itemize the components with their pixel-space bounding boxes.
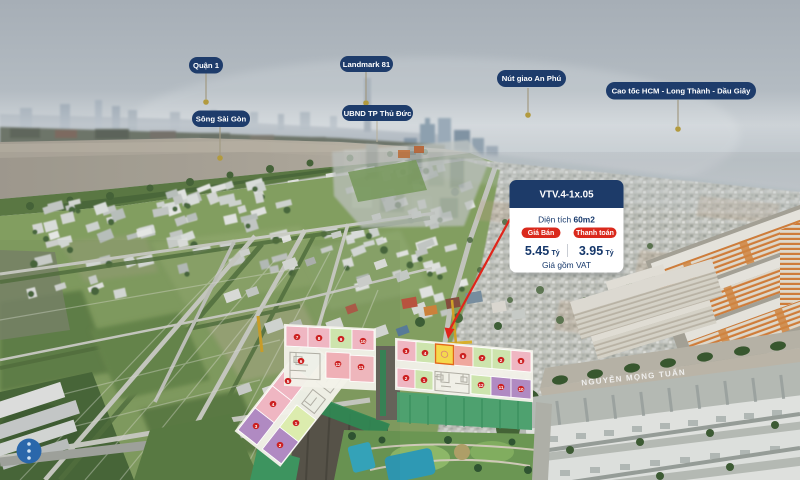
svg-text:5: 5 — [287, 379, 290, 384]
svg-text:Quận 1: Quận 1 — [193, 61, 220, 70]
svg-text:8: 8 — [318, 336, 321, 341]
svg-text:1: 1 — [423, 378, 426, 383]
svg-text:Landmark 81: Landmark 81 — [343, 60, 391, 69]
svg-text:3: 3 — [405, 349, 408, 354]
svg-text:2: 2 — [405, 376, 408, 381]
svg-text:Giá Bán: Giá Bán — [528, 230, 554, 237]
svg-text:Nút giao An Phú: Nút giao An Phú — [502, 74, 562, 83]
svg-text:UBND TP Thủ Đức: UBND TP Thủ Đức — [344, 109, 413, 118]
svg-text:10: 10 — [518, 387, 524, 392]
svg-text:1: 1 — [295, 421, 298, 426]
svg-text:Tỷ: Tỷ — [606, 250, 614, 257]
svg-text:VTV.4-1x.05: VTV.4-1x.05 — [539, 190, 594, 201]
svg-text:2: 2 — [279, 443, 282, 448]
svg-text:3.95: 3.95 — [579, 244, 603, 258]
svg-text:Diện tích 60m2: Diện tích 60m2 — [538, 215, 595, 225]
svg-text:10: 10 — [360, 339, 366, 344]
svg-text:Tỷ: Tỷ — [552, 250, 560, 257]
svg-text:9: 9 — [340, 337, 343, 342]
svg-text:Giá gồm VAT: Giá gồm VAT — [542, 260, 591, 270]
svg-text:8: 8 — [520, 359, 523, 364]
svg-text:2: 2 — [500, 358, 503, 363]
svg-text:Cao tốc HCM - Long Thành - Dầu: Cao tốc HCM - Long Thành - Dầu Giây — [612, 87, 752, 96]
svg-text:5.45: 5.45 — [525, 244, 549, 258]
svg-text:12: 12 — [478, 383, 484, 388]
svg-text:Thanh toán: Thanh toán — [576, 230, 614, 237]
svg-text:6: 6 — [300, 359, 303, 364]
svg-text:4: 4 — [272, 402, 275, 407]
svg-text:3: 3 — [255, 424, 258, 429]
svg-text:7: 7 — [481, 356, 484, 361]
svg-text:7: 7 — [296, 335, 299, 340]
svg-text:6: 6 — [462, 354, 465, 359]
svg-text:12: 12 — [335, 362, 341, 367]
svg-text:Sông Sài Gòn: Sông Sài Gòn — [196, 115, 247, 124]
svg-text:11: 11 — [499, 385, 504, 390]
svg-text:11: 11 — [359, 365, 364, 370]
svg-text:4: 4 — [424, 351, 427, 356]
